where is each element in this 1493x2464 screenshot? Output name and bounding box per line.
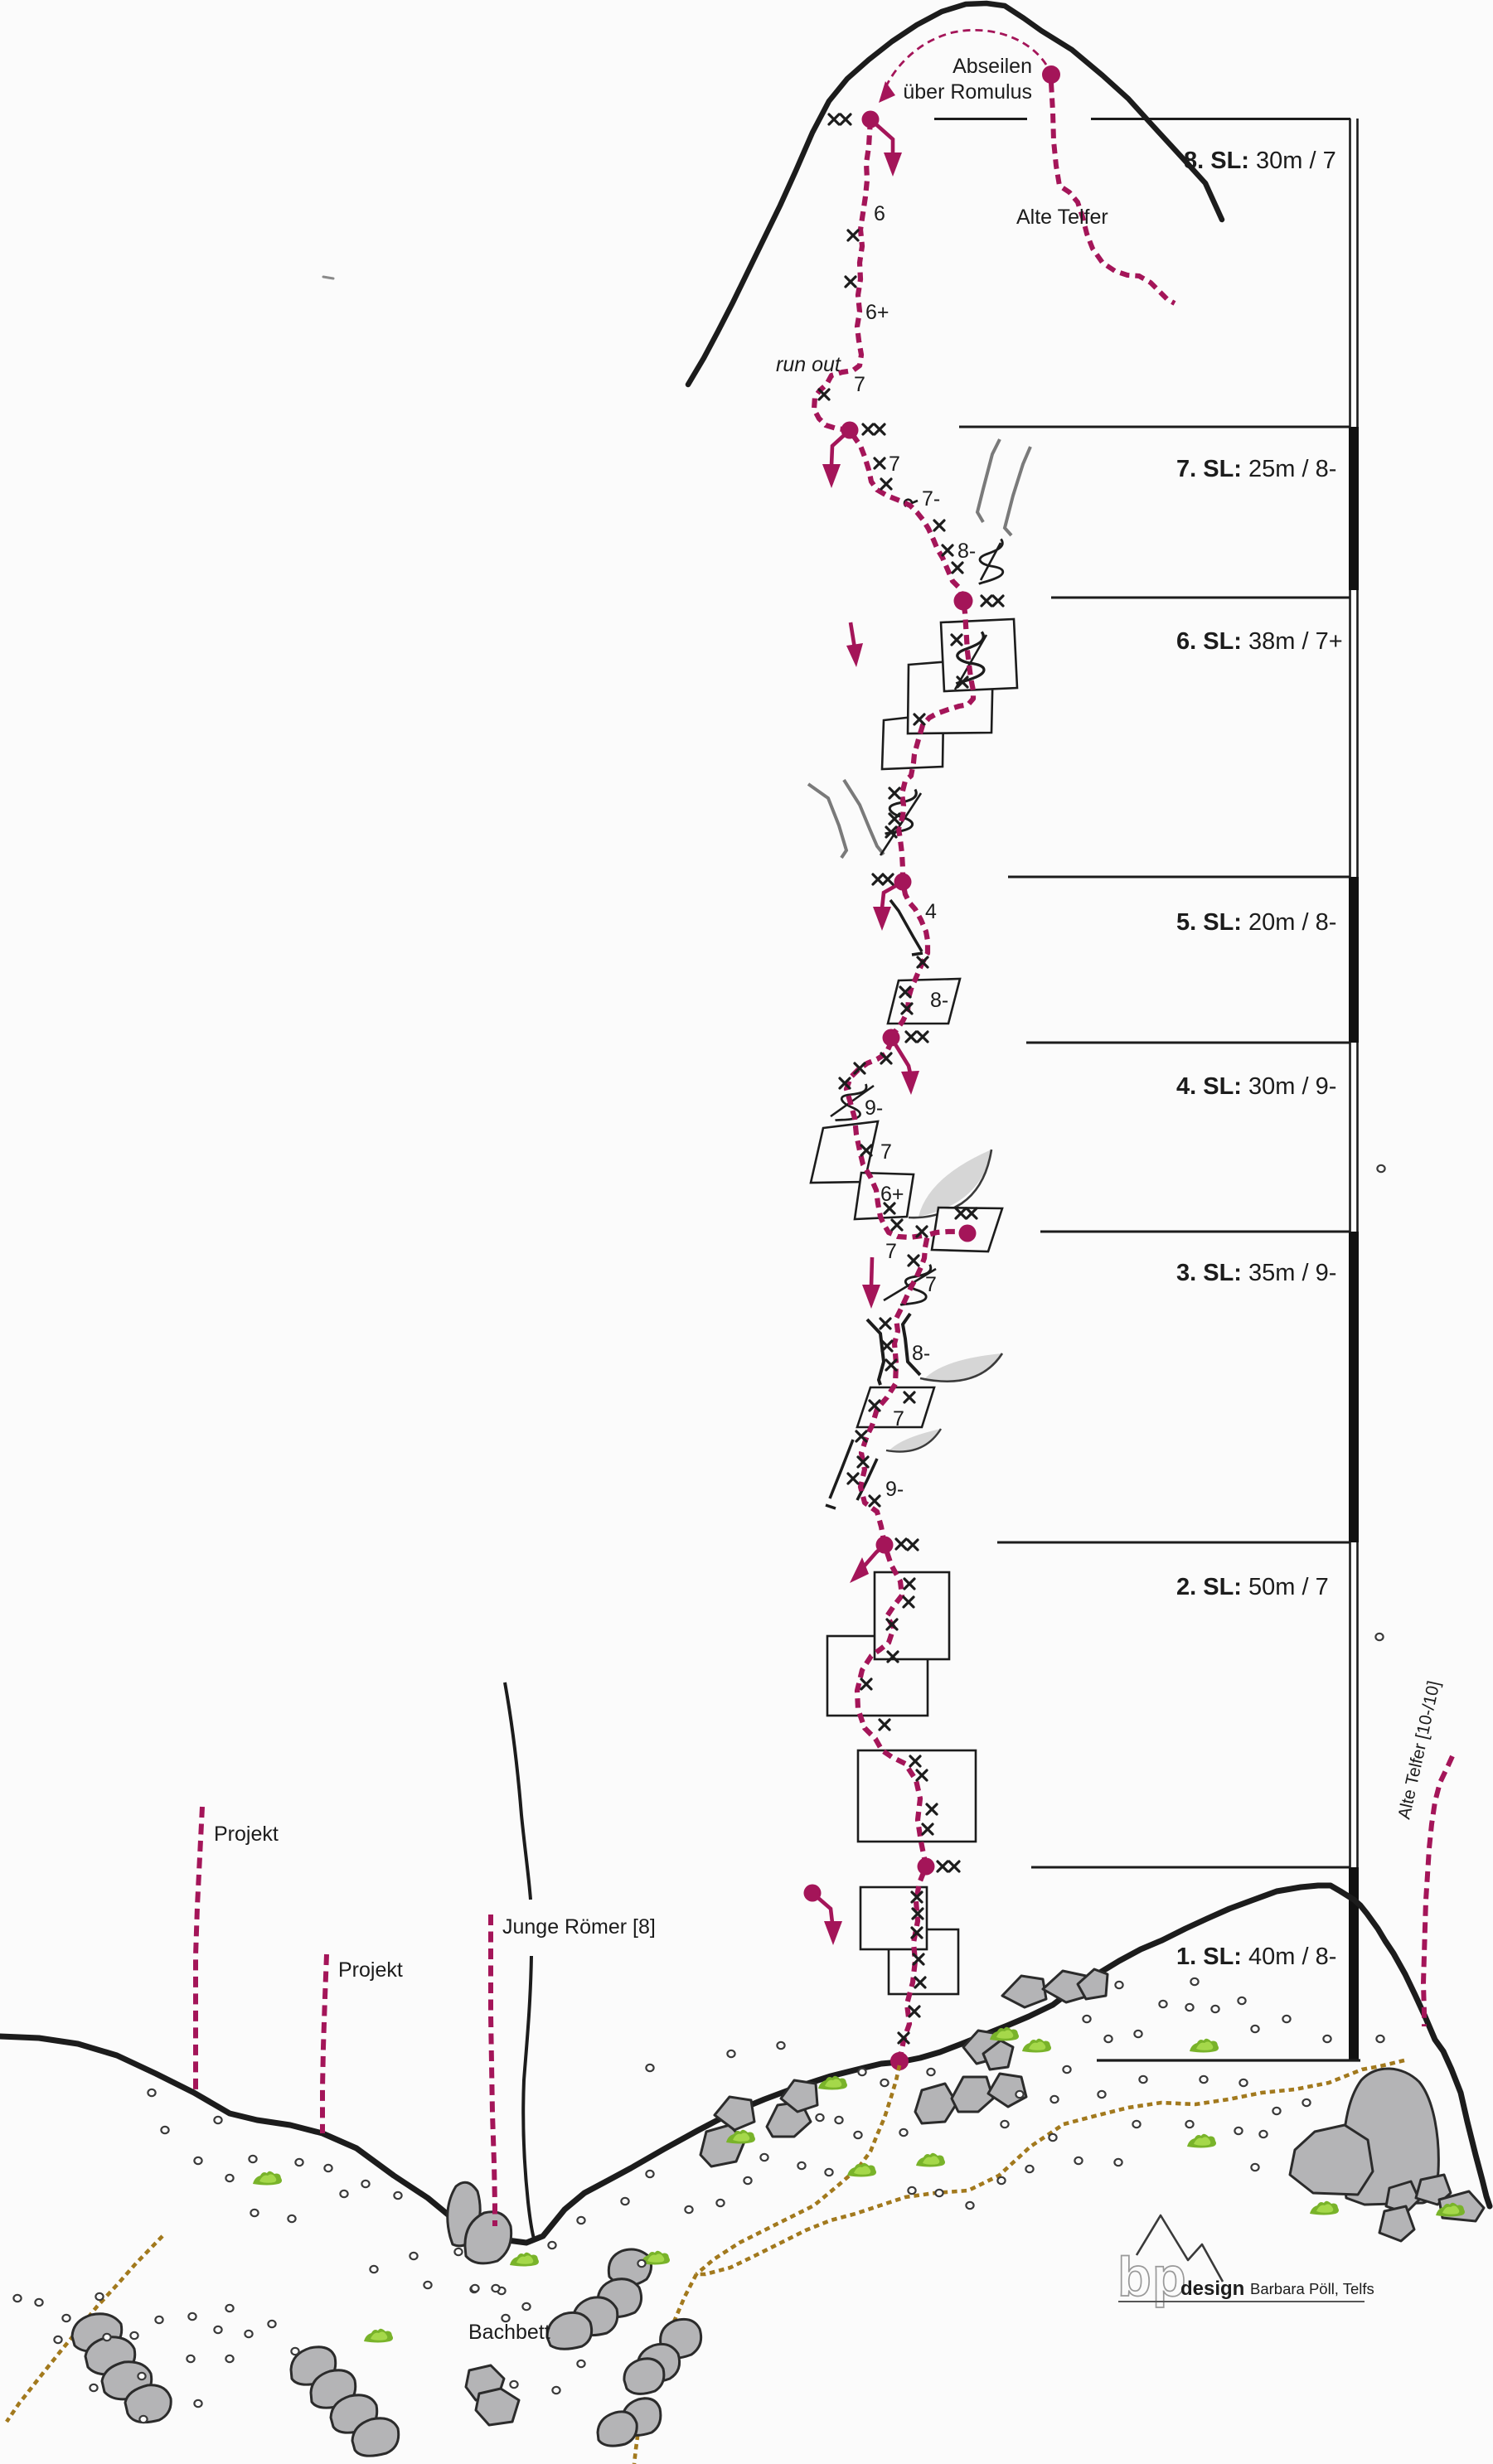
svg-text:7: 7 (880, 1140, 892, 1164)
svg-text:8. SL: 30m / 7: 8. SL: 30m / 7 (1184, 148, 1336, 174)
svg-text:Alte Telfer: Alte Telfer (1016, 206, 1108, 229)
svg-text:über Romulus: über Romulus (903, 80, 1032, 104)
svg-text:7: 7 (885, 1240, 897, 1263)
svg-text:8-: 8- (957, 540, 976, 563)
svg-text:7: 7 (925, 1273, 937, 1296)
svg-text:Abseilen: Abseilen (953, 55, 1032, 78)
svg-text:7. SL: 25m / 8-: 7. SL: 25m / 8- (1176, 456, 1336, 482)
svg-text:Projekt: Projekt (214, 1823, 279, 1846)
svg-text:Barbara Pöll, Telfs: Barbara Pöll, Telfs (1250, 2280, 1374, 2297)
svg-text:6+: 6+ (880, 1183, 904, 1206)
svg-text:6+: 6+ (865, 301, 889, 324)
svg-text:design: design (1180, 2278, 1244, 2300)
svg-text:Bachbett: Bachbett (468, 2321, 550, 2344)
svg-text:9-: 9- (865, 1096, 883, 1120)
svg-text:5. SL: 20m / 8-: 5. SL: 20m / 8- (1176, 909, 1336, 936)
svg-text:7: 7 (893, 1407, 904, 1430)
svg-text:8-: 8- (930, 989, 948, 1012)
svg-text:4. SL: 30m / 9-: 4. SL: 30m / 9- (1176, 1073, 1336, 1100)
svg-text:9-: 9- (885, 1478, 904, 1501)
svg-text:Junge Römer [8]: Junge Römer [8] (502, 1915, 656, 1939)
svg-text:Projekt: Projekt (338, 1958, 403, 1982)
svg-text:4: 4 (925, 900, 937, 923)
svg-text:7-: 7- (922, 487, 940, 511)
svg-text:run out: run out (776, 353, 841, 376)
svg-text:6. SL: 38m / 7+: 6. SL: 38m / 7+ (1176, 628, 1343, 655)
svg-text:7: 7 (889, 453, 900, 476)
svg-text:2. SL: 50m / 7: 2. SL: 50m / 7 (1176, 1574, 1329, 1600)
svg-text:1. SL: 40m / 8-: 1. SL: 40m / 8- (1176, 1944, 1336, 1970)
svg-text:3. SL: 35m / 9-: 3. SL: 35m / 9- (1176, 1260, 1336, 1286)
svg-text:6: 6 (874, 202, 885, 225)
svg-text:8-: 8- (912, 1342, 930, 1365)
svg-text:bp: bp (1117, 2246, 1187, 2308)
svg-text:7: 7 (854, 373, 865, 396)
